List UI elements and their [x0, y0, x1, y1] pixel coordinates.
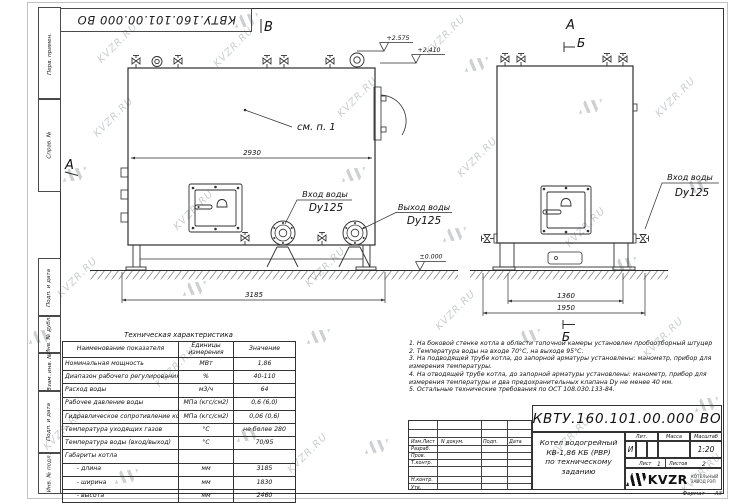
spec-table-title: Техническая характеристика	[62, 331, 295, 340]
label-side-inlet-dn: Dy125	[675, 187, 710, 199]
company-logo-cell: KVZR КОТЕЛЬНЫЙ ЗАВОД РЭП	[625, 468, 722, 490]
note-line: 5. Остальные технические требования по О…	[409, 386, 721, 394]
table-row: - высота мм 2460	[63, 489, 296, 502]
sheet-value: 1	[657, 461, 661, 468]
sig-nkontr: Н.контр.	[411, 477, 433, 483]
lit-value: И	[625, 441, 636, 458]
spec-row-unit: м3/ч	[179, 384, 234, 397]
label-elev-2575: +2.575	[387, 35, 410, 42]
side-valve-left	[482, 235, 495, 243]
boiler-drawing-sheet: { "watermark": {"text": "KVZR.RU"}, "fra…	[0, 0, 750, 500]
title-block: КВТУ.160.101.00.000 ВО Изм.Лист N докум.…	[408, 405, 722, 490]
title-block-doc-name: Котел водогрейный КВ-1,86 КБ (РВР) по те…	[532, 432, 625, 490]
label-view-a-front: А	[64, 158, 74, 173]
sheets-label: Листов	[669, 461, 687, 467]
format-row: Формат А3	[650, 491, 722, 497]
spec-row-name: Расход воды	[63, 384, 179, 397]
hdr-sign: Подп.	[483, 439, 498, 445]
inlet-flange	[271, 221, 295, 245]
label-section-b-top: Б	[577, 36, 585, 50]
spec-table-header-row: Наименование показателяЕдиницы измерения…	[63, 342, 296, 358]
sig-razrab: Разраб.	[411, 446, 430, 452]
table-row: Номинальная мощность МВт 1,86	[63, 358, 296, 371]
table-row: Рабочее давление воды МПа (кгс/см2) 0,6 …	[63, 397, 296, 410]
technical-notes: 1. На боковой стенке котла в области топ…	[409, 340, 721, 394]
table-row: Габариты котла	[63, 450, 296, 463]
spec-row-name: Диапазон рабочего регулирования	[63, 371, 179, 384]
label-dim-1950: 1950	[557, 304, 575, 312]
front-access-door	[189, 184, 242, 232]
spec-row-value: 0,06 (0,6)	[234, 410, 296, 423]
label-section-v: В	[264, 20, 273, 35]
outlet-flange	[343, 221, 367, 245]
front-view	[65, 19, 458, 303]
spec-row-value: не более 280	[234, 423, 296, 436]
label-elev-2410: +2.410	[418, 47, 441, 54]
section-b-top-tick	[564, 42, 575, 52]
see-note-leader	[244, 109, 292, 127]
side-base	[493, 243, 635, 270]
door-bolts	[192, 186, 240, 231]
table-row: Гидравлическое сопротивление котла МПа (…	[63, 410, 296, 423]
hdr-izm-list: Изм.Лист	[411, 439, 435, 445]
label-side-inlet-title: Вход воды	[667, 172, 713, 182]
spec-row-unit	[179, 450, 234, 463]
label-dim-3185: 3185	[245, 291, 263, 299]
spec-row-value: 1830	[234, 476, 296, 489]
ground-hatch-front	[90, 271, 458, 280]
spec-row-unit: МВт	[179, 358, 234, 371]
door-emblem	[217, 200, 227, 208]
sig-tkontr: Т.контр.	[411, 460, 432, 466]
sheet-label: Лист	[639, 461, 651, 467]
spec-row-unit: МПа (кгс/см2)	[179, 397, 234, 410]
spec-row-unit: %	[179, 371, 234, 384]
mass-value	[658, 441, 690, 458]
spec-row-unit: мм	[179, 489, 234, 502]
spec-row-value: 70/95	[234, 437, 296, 450]
spec-row-name: Температура уходящих газов	[63, 423, 179, 436]
sig-prov: Пров.	[411, 453, 425, 459]
scale-value: 1:20	[690, 441, 722, 458]
side-boiler-body	[497, 66, 633, 243]
spec-table-header-cell: Значение	[234, 342, 296, 358]
title-block-designation: КВТУ.160.101.00.000 ВО	[532, 405, 722, 432]
drain-valve-1	[241, 233, 249, 246]
spec-row-value: 64	[234, 384, 296, 397]
furnace-door	[541, 186, 591, 234]
front-base	[126, 245, 376, 270]
side-view	[470, 42, 719, 329]
spec-row-value: 0,6 (6,0)	[234, 397, 296, 410]
section-b-bottom-tick	[563, 320, 575, 329]
sheet-row: Лист 1 Листов 2	[625, 458, 722, 468]
spec-row-name: Гидравлическое сопротивление котла	[63, 410, 179, 423]
spec-table-header-cell: Наименование показателя	[63, 342, 179, 358]
drain-valve-2	[318, 233, 326, 246]
drawing-labels: В А +2.575 +2.410 см. п. 1 2930 Вход вод…	[64, 18, 713, 344]
note-line: измерения температуры.	[409, 363, 721, 371]
sig-utv: Утв.	[411, 485, 421, 491]
label-outlet-dn: Dy125	[407, 215, 442, 227]
label-inlet-dn: Dy125	[309, 202, 344, 214]
spec-row-name: - ширина	[63, 476, 179, 489]
kvzr-logo-text: KVZR	[648, 472, 688, 487]
lit-label: Лит.	[625, 432, 658, 441]
scale-label: Масштаб	[690, 432, 722, 441]
front-side-door-edge	[374, 87, 406, 140]
label-inlet-title: Вход воды	[302, 189, 348, 199]
spec-table: Наименование показателяЕдиницы измерения…	[62, 341, 296, 503]
side-valve-right	[636, 235, 649, 243]
spec-table-body: Номинальная мощность МВт 1,86 Диапазон р…	[63, 358, 296, 503]
spec-row-name: Номинальная мощность	[63, 358, 179, 371]
side-top-valves	[501, 54, 627, 67]
sheets-value: 2	[702, 461, 706, 468]
spec-table-block: Техническая характеристика Наименование …	[62, 331, 295, 503]
note-line: 3. На подводящей трубе котла, до запорно…	[409, 355, 721, 363]
spec-row-unit: мм	[179, 463, 234, 476]
spec-table-header-cell: Единицы измерения	[179, 342, 234, 358]
label-view-a-side: А	[565, 18, 575, 33]
note-line: 4. На отводящей трубе котла, до запорной…	[409, 371, 721, 379]
label-dim-1360: 1360	[557, 292, 575, 300]
table-row: Расход воды м3/ч 64	[63, 384, 296, 397]
spec-row-unit: мм	[179, 476, 234, 489]
spec-row-value	[234, 450, 296, 463]
title-block-signature-grid: Изм.Лист N докум. Подп. Дата Разраб. Про…	[408, 420, 532, 490]
table-row: - ширина мм 1830	[63, 476, 296, 489]
spec-row-unit: °С	[179, 437, 234, 450]
label-zero-level: ±0.000	[420, 254, 443, 261]
spec-row-unit: МПа (кгс/см2)	[179, 410, 234, 423]
spec-row-name: - высота	[63, 489, 179, 502]
spec-row-value: 40-110	[234, 371, 296, 384]
table-row: - длина мм 3185	[63, 463, 296, 476]
ground-hatch-side	[470, 271, 668, 280]
table-row: Температура уходящих газов °С не более 2…	[63, 423, 296, 436]
mass-label: Масса	[658, 432, 690, 441]
zero-level-mark	[416, 262, 447, 271]
note-line: 1. На боковой стенке котла в области топ…	[409, 340, 721, 348]
spec-row-name: Рабочее давление воды	[63, 397, 179, 410]
hdr-date: Дата	[509, 439, 522, 445]
front-left-tabs	[121, 168, 128, 222]
spec-row-value: 3185	[234, 463, 296, 476]
furnace-door-emblem	[561, 199, 571, 207]
lit-cell-2	[636, 441, 647, 458]
label-dim-2930: 2930	[243, 149, 261, 157]
kvzr-logo-icon	[626, 473, 648, 486]
spec-row-unit: °С	[179, 423, 234, 436]
spec-row-value: 1,86	[234, 358, 296, 371]
lit-cell-3	[647, 441, 658, 458]
hdr-doc-num: N докум.	[441, 439, 464, 445]
spec-row-name: - длина	[63, 463, 179, 476]
table-row: Диапазон рабочего регулирования % 40-110	[63, 371, 296, 384]
label-outlet-title: Выход воды	[398, 202, 451, 212]
spec-row-name: Габариты котла	[63, 450, 179, 463]
table-row: Температура воды (вход/выход) °С 70/95	[63, 437, 296, 450]
label-see-note: см. п. 1	[297, 122, 336, 133]
spec-row-name: Температура воды (вход/выход)	[63, 437, 179, 450]
spec-row-value: 2460	[234, 489, 296, 502]
